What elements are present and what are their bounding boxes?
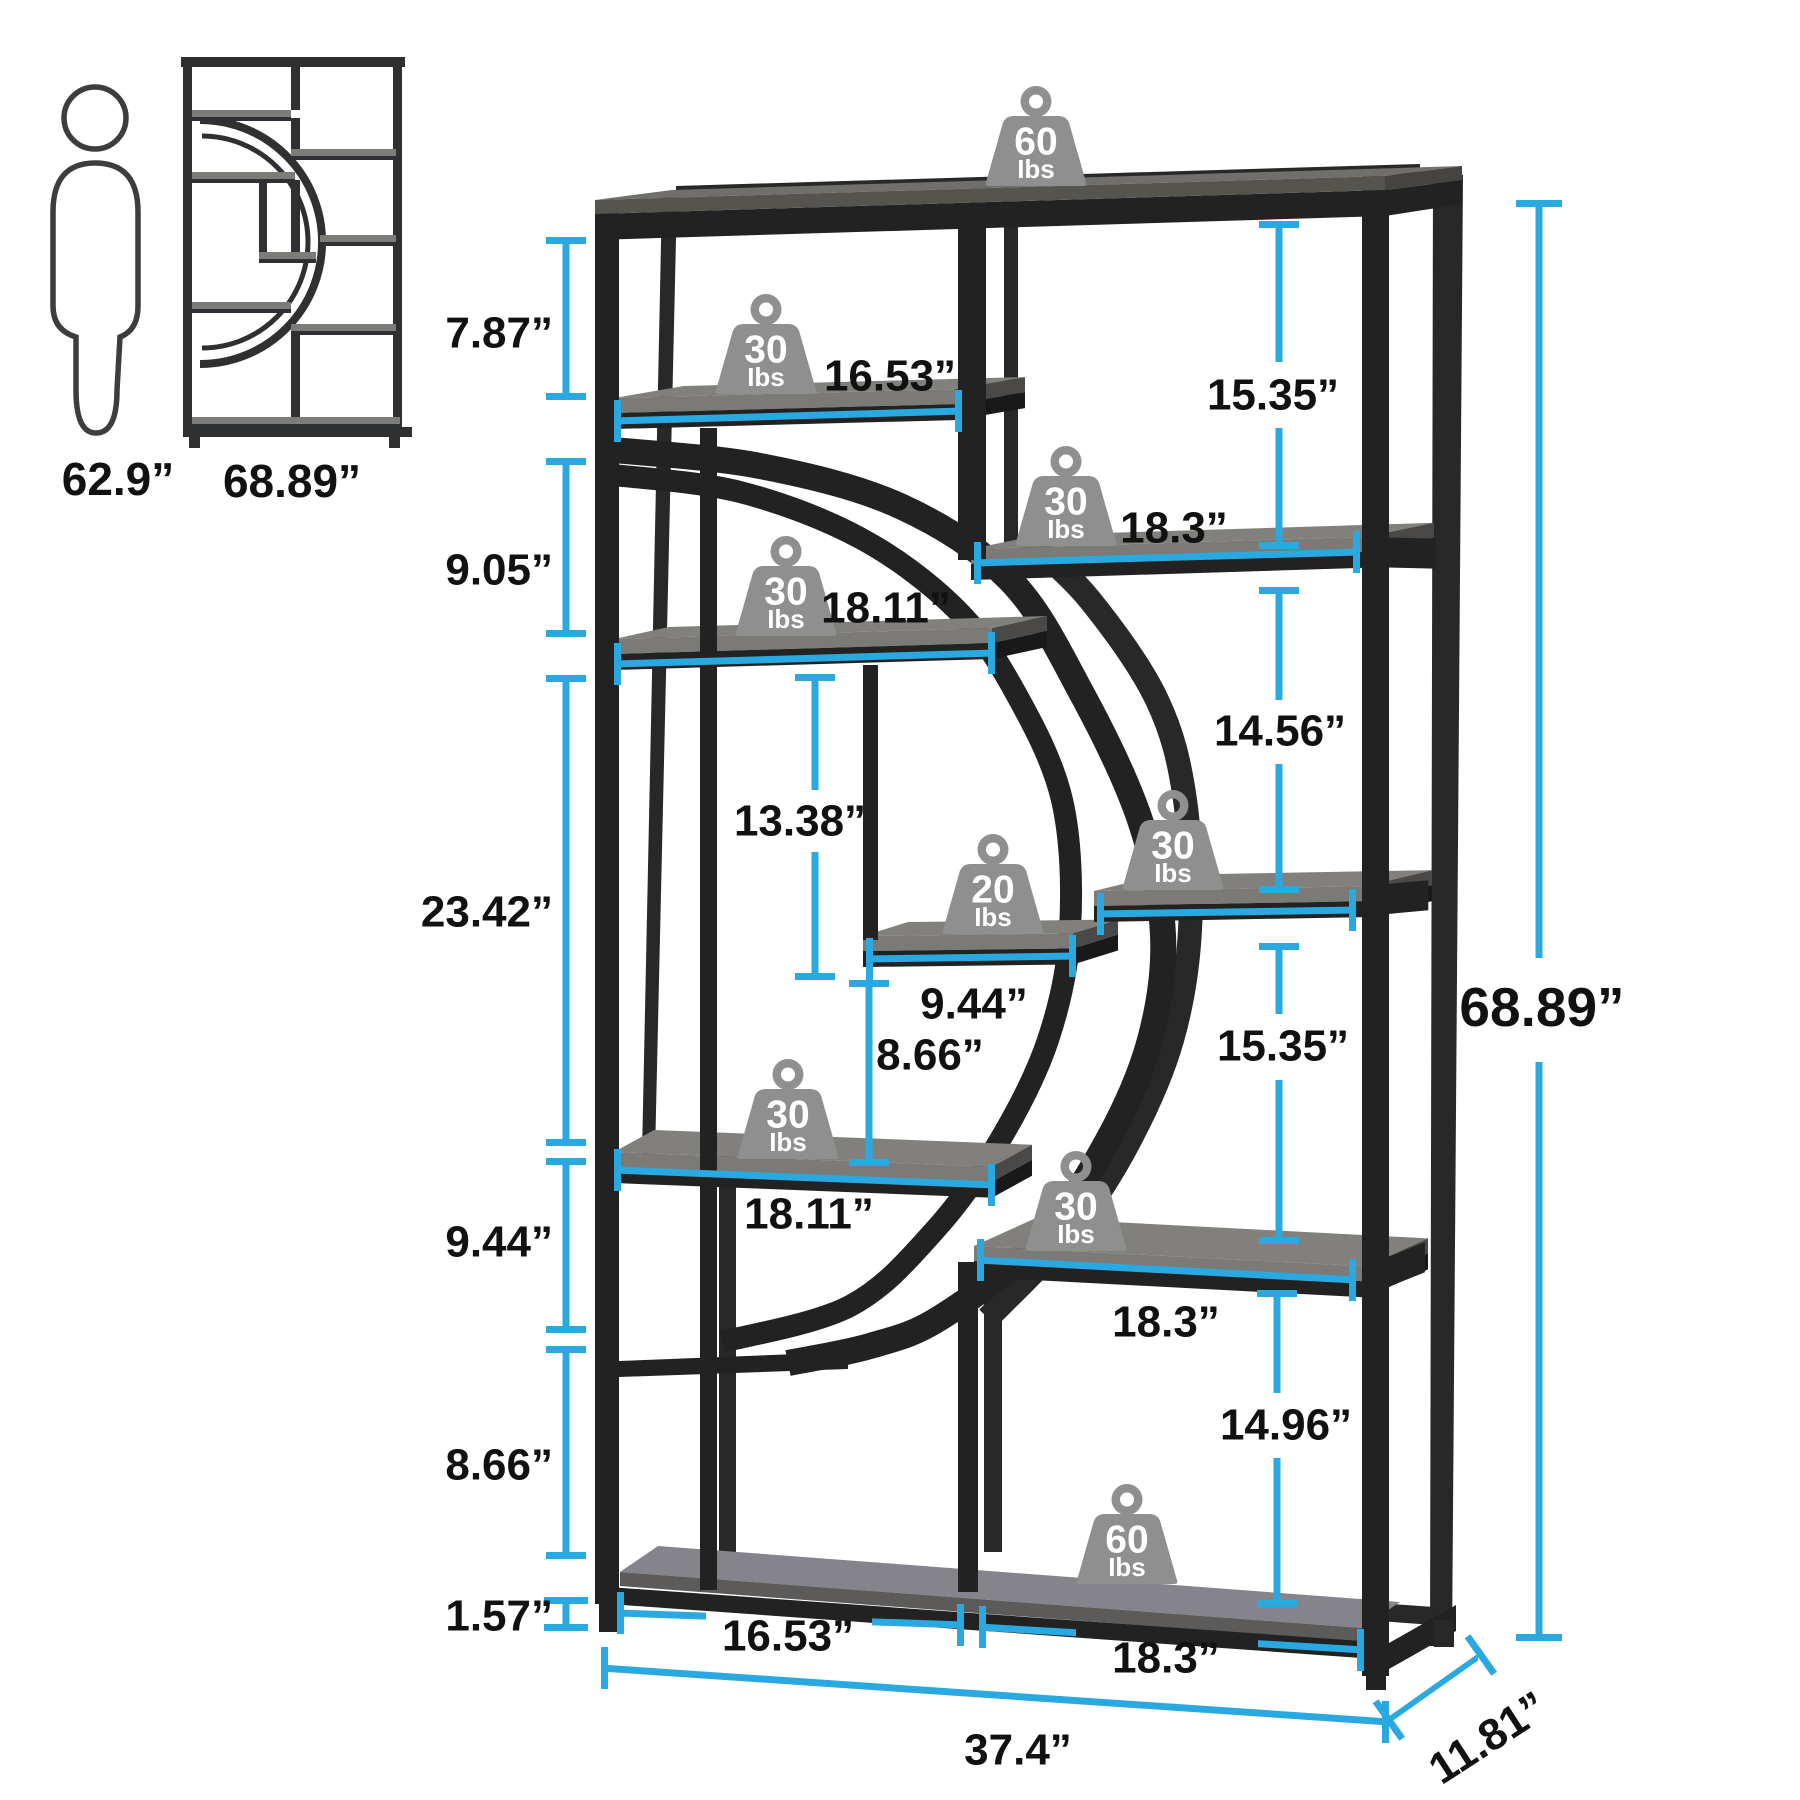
svg-text:68.89”: 68.89”: [1459, 976, 1624, 1038]
svg-text:23.42”: 23.42”: [421, 888, 553, 937]
svg-text:15.35”: 15.35”: [1207, 371, 1339, 420]
svg-text:18.3”: 18.3”: [1112, 1298, 1220, 1347]
svg-text:18.3”: 18.3”: [1112, 1634, 1220, 1683]
svg-text:14.96”: 14.96”: [1220, 1401, 1352, 1450]
svg-text:13.38”: 13.38”: [734, 797, 866, 846]
svg-text:Ibs: Ibs: [767, 604, 805, 634]
svg-text:15.35”: 15.35”: [1217, 1022, 1349, 1071]
svg-text:8.66”: 8.66”: [445, 1441, 553, 1490]
svg-text:Ibs: Ibs: [1154, 858, 1192, 888]
svg-text:14.56”: 14.56”: [1214, 707, 1346, 756]
svg-text:7.87”: 7.87”: [445, 309, 553, 358]
svg-text:8.66”: 8.66”: [876, 1031, 984, 1080]
svg-text:Ibs: Ibs: [769, 1127, 807, 1157]
svg-text:18.11”: 18.11”: [744, 1190, 874, 1239]
svg-text:Ibs: Ibs: [747, 362, 785, 392]
svg-text:Ibs: Ibs: [1017, 154, 1055, 184]
svg-text:Ibs: Ibs: [1057, 1219, 1095, 1249]
svg-text:Ibs: Ibs: [1108, 1552, 1146, 1582]
svg-text:9.44”: 9.44”: [445, 1218, 553, 1267]
svg-text:18.3”: 18.3”: [1120, 504, 1228, 553]
svg-text:18.11”: 18.11”: [821, 584, 951, 633]
svg-text:Ibs: Ibs: [974, 902, 1012, 932]
svg-text:16.53”: 16.53”: [824, 352, 956, 401]
svg-text:Ibs: Ibs: [1047, 514, 1085, 544]
svg-text:9.05”: 9.05”: [445, 546, 553, 595]
svg-text:16.53”: 16.53”: [722, 1612, 854, 1661]
svg-text:9.44”: 9.44”: [920, 980, 1028, 1029]
svg-text:1.57”: 1.57”: [445, 1592, 553, 1641]
svg-text:62.9”: 62.9”: [62, 453, 175, 505]
svg-text:37.4”: 37.4”: [964, 1726, 1072, 1775]
svg-text:68.89”: 68.89”: [223, 455, 361, 507]
